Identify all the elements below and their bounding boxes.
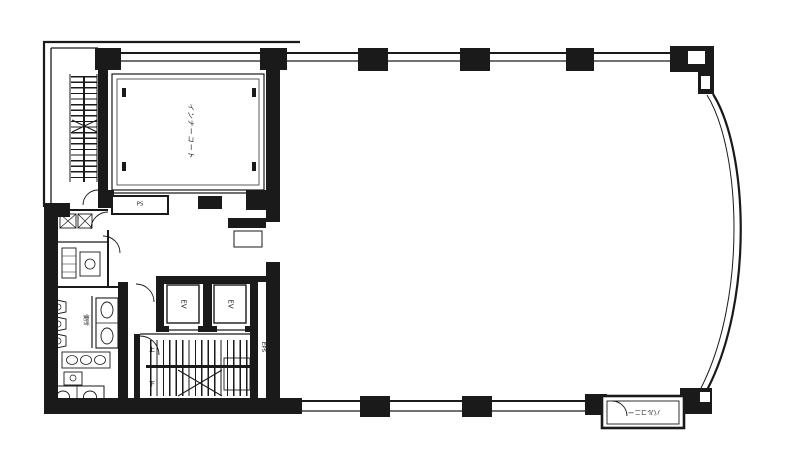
- floor-plan: インナーコート PS EV EV EPS 便所 上 下 バルコニー: [0, 0, 787, 460]
- curved-east-wall: [701, 94, 741, 390]
- toilet-walls: [118, 282, 128, 398]
- elevator-2-label: EV: [227, 299, 234, 308]
- ps-label: PS: [137, 202, 144, 208]
- toilet-fixtures: [50, 296, 118, 408]
- top-window-wall: [95, 53, 712, 61]
- balcony-label: バルコニー: [628, 409, 660, 416]
- stair-up-label: 上: [149, 348, 155, 354]
- floorplan-linework: [0, 0, 787, 460]
- eps-label: EPS: [259, 342, 265, 352]
- interior-stair-rail: [146, 365, 250, 368]
- exterior-stair-rail: [83, 76, 85, 182]
- toilet-label: 便所: [82, 314, 88, 326]
- inner-court-label: インナーコート: [187, 103, 194, 159]
- service-fixtures: [60, 214, 100, 278]
- elevator-1-label: EV: [180, 299, 187, 308]
- stair-down-label: 下: [149, 382, 155, 388]
- interior-stair-treads: [150, 340, 248, 396]
- office-entry-door: [234, 231, 262, 247]
- stair-enclosure: [134, 334, 140, 398]
